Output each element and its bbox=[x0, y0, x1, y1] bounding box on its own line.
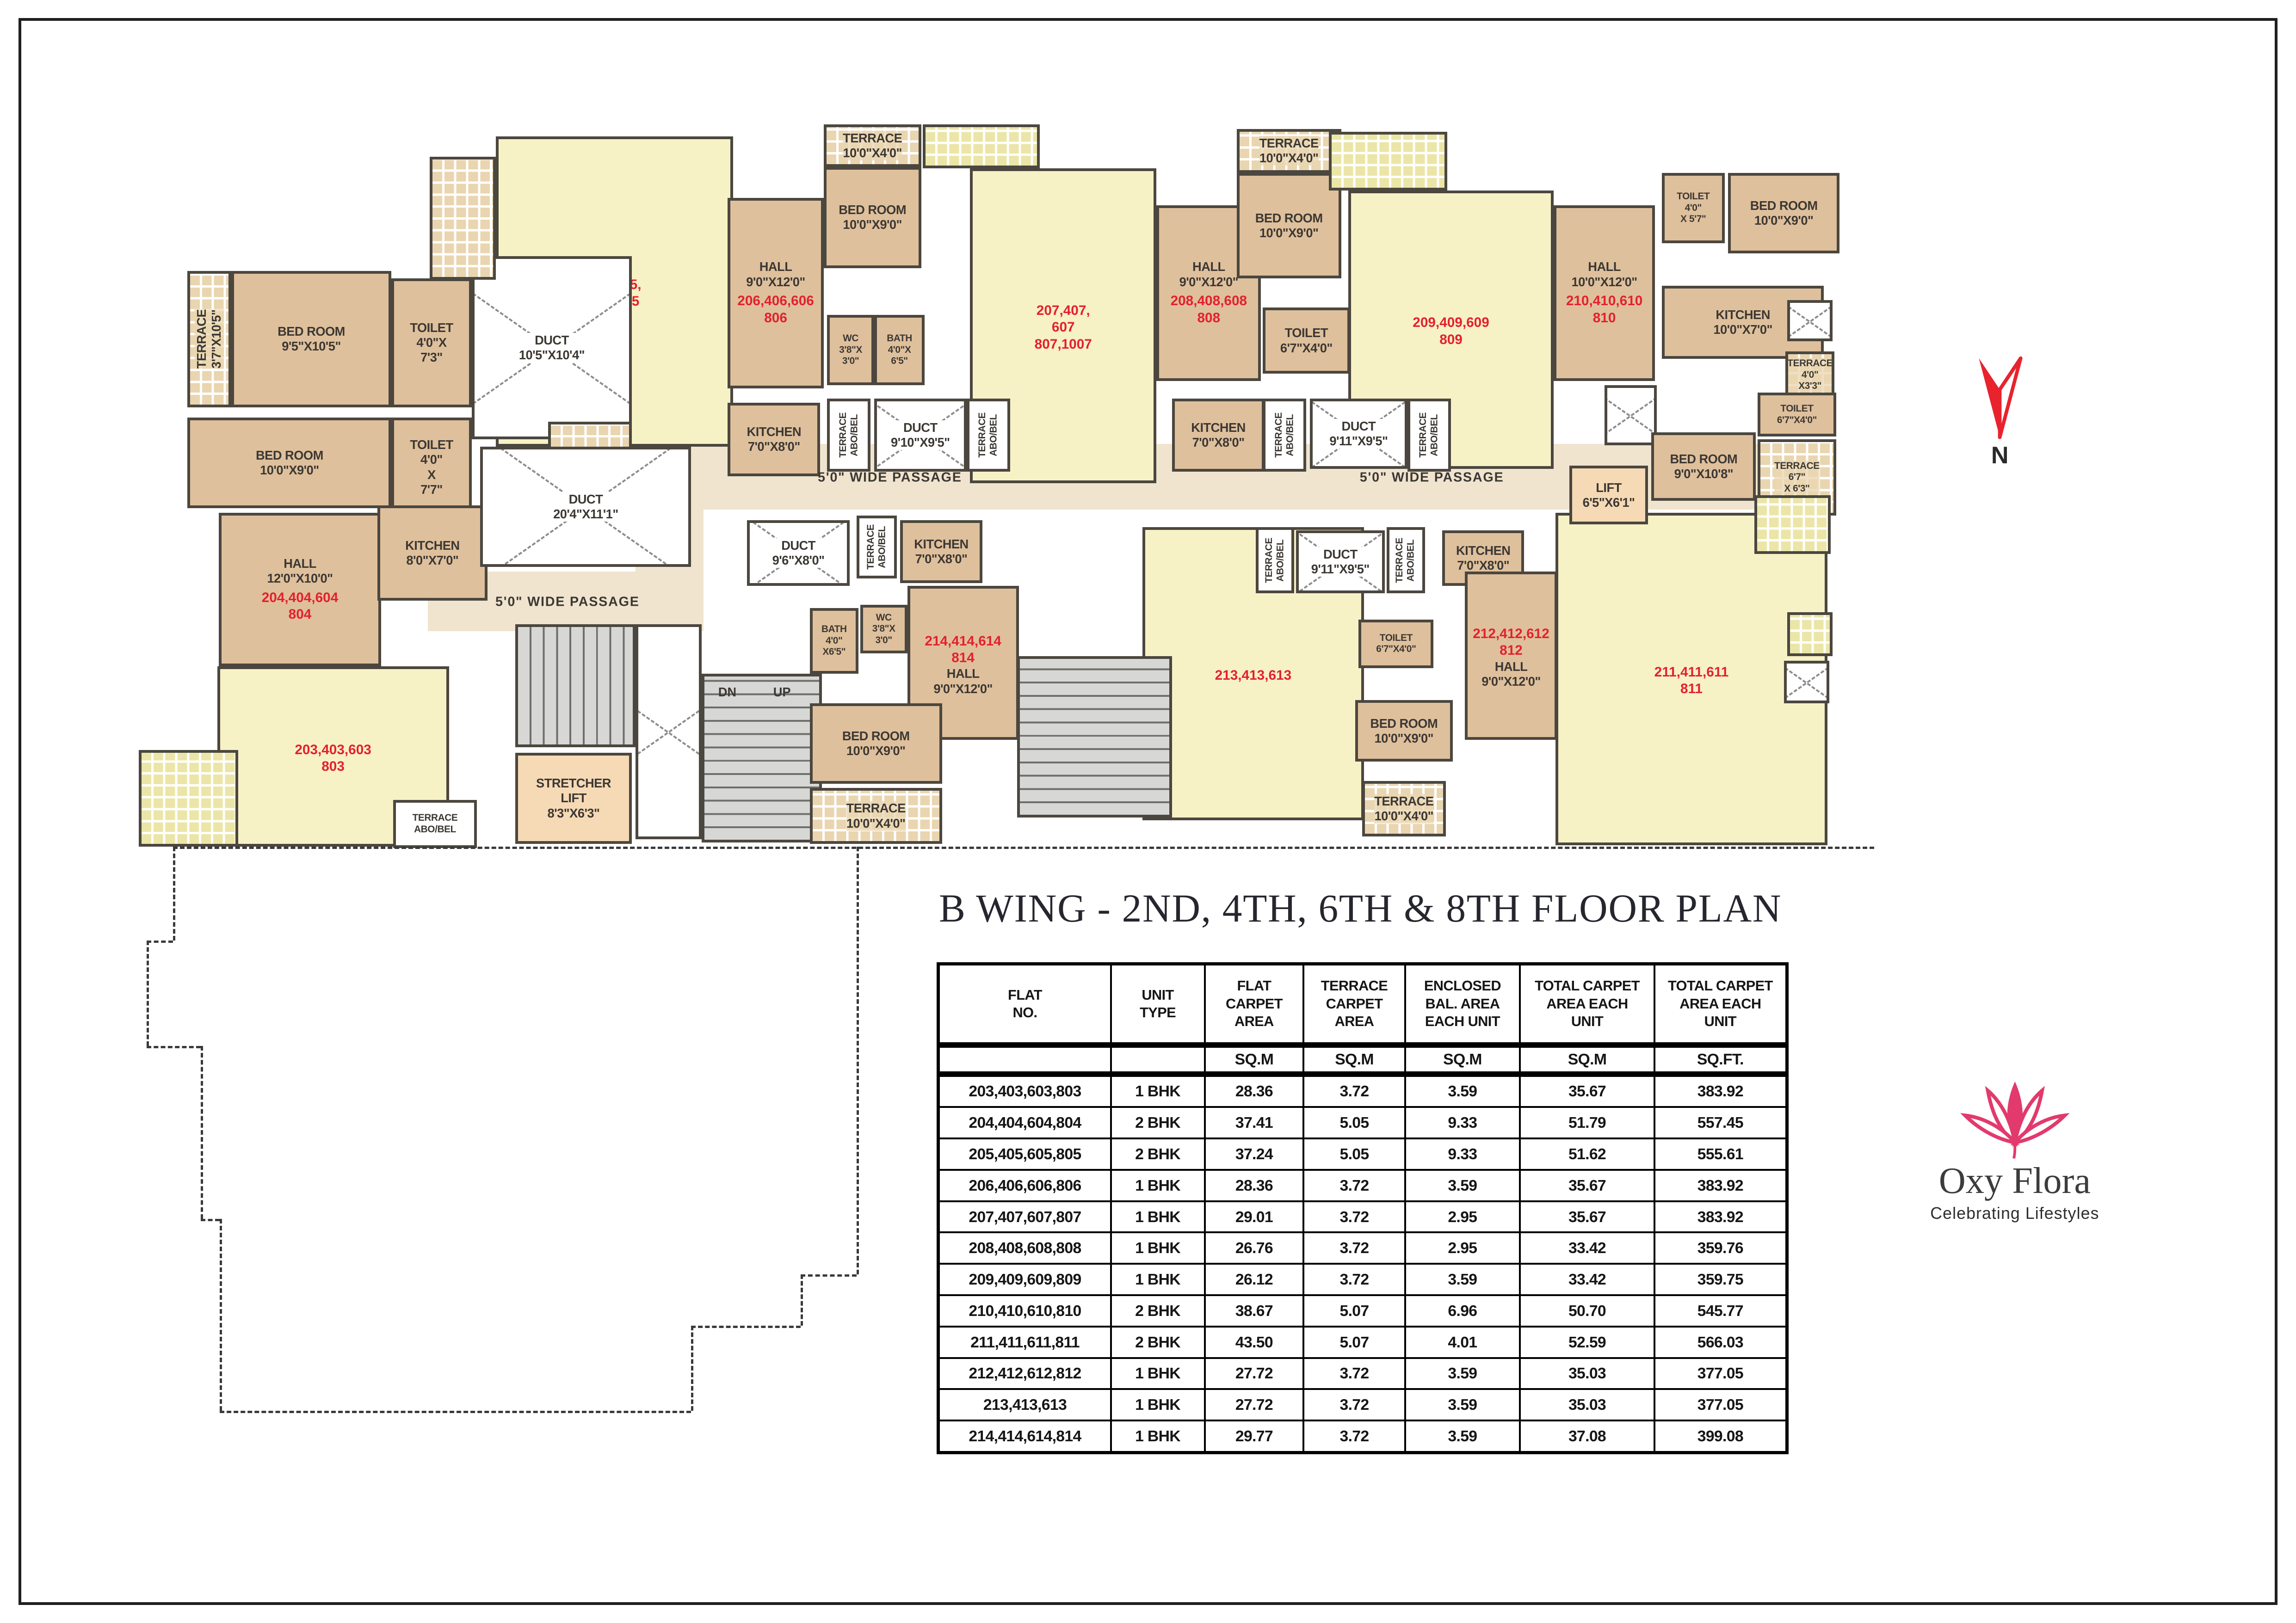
table-units-row: SQ.MSQ.MSQ.MSQ.MSQ.FT. bbox=[940, 1046, 1785, 1075]
footprint-outline-12 bbox=[801, 1274, 803, 1326]
kitchen-206: KITCHEN 7'0"X8'0" bbox=[728, 403, 820, 476]
table-row-4: 206,406,606,8061 BHK28.363.723.5935.6738… bbox=[940, 1169, 1785, 1200]
hall-206-lbl: HALL 9'0"X12'0" bbox=[746, 259, 805, 289]
terrace-205 bbox=[430, 157, 496, 280]
bedroom-210b: BED ROOM 9'0"X10'8" bbox=[1651, 432, 1756, 501]
table-row-1-cell-3: 28.36 bbox=[1204, 1077, 1303, 1107]
hall-214-flat: 214,414,614 814 bbox=[925, 633, 1001, 667]
table-row-11-cell-1: 213,413,613 bbox=[940, 1390, 1110, 1420]
table-row-9-cell-2: 2 BHK bbox=[1110, 1328, 1204, 1357]
table-row-8: 210,410,610,8102 BHK38.675.076.9650.7054… bbox=[940, 1294, 1785, 1326]
bedroom-210a-lbl: BED ROOM 10'0"X9'0" bbox=[1750, 198, 1818, 228]
table-row-11-cell-4: 3.72 bbox=[1302, 1390, 1404, 1420]
terrace-abobel-208l-lbl: TERRACE ABO/BEL bbox=[1273, 412, 1296, 458]
table-row-2-cell-2: 2 BHK bbox=[1110, 1108, 1204, 1137]
table-header-row-cell-2: UNIT TYPE bbox=[1110, 965, 1204, 1042]
table-row-8-cell-2: 2 BHK bbox=[1110, 1296, 1204, 1326]
table-row-4-cell-5: 3.59 bbox=[1404, 1171, 1519, 1200]
table-row-6: 208,408,608,8081 BHK26.763.722.9533.4235… bbox=[940, 1231, 1785, 1263]
table-row-2-cell-3: 37.41 bbox=[1204, 1108, 1303, 1137]
table-row-1-cell-2: 1 BHK bbox=[1110, 1077, 1204, 1107]
footprint-outline-6 bbox=[201, 1046, 203, 1219]
terrace-214: TERRACE 10'0"X4'0" bbox=[810, 788, 942, 843]
area-table: FLAT NO.UNIT TYPEFLAT CARPET AREATERRACE… bbox=[937, 962, 1789, 1454]
table-header-row-cell-3: FLAT CARPET AREA bbox=[1204, 965, 1303, 1042]
footprint-outline-13 bbox=[801, 1274, 857, 1277]
table-row-10-cell-6: 35.03 bbox=[1519, 1359, 1654, 1389]
bedroom-214: BED ROOM 10'0"X9'0" bbox=[810, 703, 942, 784]
wc-206: WC 3'8"X 3'0" bbox=[827, 315, 874, 385]
terrace-207 bbox=[923, 124, 1039, 168]
terrace-211a bbox=[1754, 495, 1831, 554]
duct-208: DUCT 9'11"X9'5" bbox=[1310, 399, 1407, 469]
table-row-9-cell-3: 43.50 bbox=[1204, 1328, 1303, 1357]
table-units-row-cell-3: SQ.M bbox=[1204, 1048, 1303, 1071]
table-units-row-cell-2 bbox=[1110, 1048, 1204, 1071]
table-row-9-cell-6: 52.59 bbox=[1519, 1328, 1654, 1357]
terrace-209 bbox=[1329, 132, 1447, 191]
terrace-204: TERRACE 3'7"X10'5" bbox=[187, 271, 231, 407]
passage-label-2: 5'0" WIDE PASSAGE bbox=[818, 470, 962, 485]
toilet-210b: TOILET 6'7"X4'0" bbox=[1758, 393, 1836, 436]
bedroom-208: BED ROOM 10'0"X9'0" bbox=[1237, 173, 1341, 278]
duct-211 bbox=[1784, 661, 1829, 703]
table-row-6-cell-1: 208,408,608,808 bbox=[940, 1233, 1110, 1263]
shaft-a bbox=[636, 624, 702, 840]
table-row-3-cell-4: 5.05 bbox=[1302, 1139, 1404, 1169]
table-row-11-cell-7: 377.05 bbox=[1654, 1390, 1785, 1420]
hall-206-flat: 206,406,606 806 bbox=[737, 293, 814, 326]
table-row-4-cell-2: 1 BHK bbox=[1110, 1171, 1204, 1200]
hall-204: HALL 12'0"X10'0"204,404,604 804 bbox=[219, 513, 381, 667]
stair-a: UPDN bbox=[515, 624, 636, 747]
table-row-4-cell-6: 35.67 bbox=[1519, 1171, 1654, 1200]
kitchen-212-lbl: KITCHEN 7'0"X8'0" bbox=[1456, 543, 1511, 573]
table-row-9-cell-1: 211,411,611,811 bbox=[940, 1328, 1110, 1357]
toilet-208-lbl: TOILET 6'7"X4'0" bbox=[1280, 326, 1333, 355]
table-row-2-cell-6: 51.79 bbox=[1519, 1108, 1654, 1137]
stair-b: DNUP bbox=[702, 674, 822, 842]
table-row-6-cell-6: 33.42 bbox=[1519, 1233, 1654, 1263]
terrace-208: TERRACE 10'0"X4'0" bbox=[1237, 129, 1341, 173]
terrace-214-lbl: TERRACE 10'0"X4'0" bbox=[846, 801, 906, 830]
kitchen-214-lbl: KITCHEN 7'0"X8'0" bbox=[914, 537, 969, 566]
bath-206: BATH 4'0"X 6'5" bbox=[874, 315, 925, 385]
table-row-2-cell-4: 5.05 bbox=[1302, 1108, 1404, 1137]
wc-206-lbl: WC 3'8"X 3'0" bbox=[839, 333, 862, 367]
table-row-7: 209,409,609,8091 BHK26.123.723.5933.4235… bbox=[940, 1263, 1785, 1294]
table-row-3-cell-7: 555.61 bbox=[1654, 1139, 1785, 1169]
table-row-3-cell-6: 51.62 bbox=[1519, 1139, 1654, 1169]
toilet-210b-lbl: TOILET 6'7"X4'0" bbox=[1777, 403, 1817, 426]
table-row-4-cell-4: 3.72 bbox=[1302, 1171, 1404, 1200]
table-row-3-cell-3: 37.24 bbox=[1204, 1139, 1303, 1169]
table-units-row-cell-4: SQ.M bbox=[1302, 1048, 1404, 1071]
table-row-5-cell-3: 29.01 bbox=[1204, 1202, 1303, 1232]
hall-208-flat: 208,408,608 808 bbox=[1171, 293, 1247, 326]
table-row-5-cell-4: 3.72 bbox=[1302, 1202, 1404, 1232]
brand-name: Oxy Flora bbox=[1848, 1161, 2181, 1201]
table-row-8-cell-4: 5.07 bbox=[1302, 1296, 1404, 1326]
table-row-12-cell-4: 3.72 bbox=[1302, 1421, 1404, 1451]
table-header-row-cell-6: TOTAL CARPET AREA EACH UNIT bbox=[1519, 965, 1654, 1042]
bath-206-lbl: BATH 4'0"X 6'5" bbox=[887, 333, 912, 367]
toilet-204b-lbl: TOILET 4'0" X 7'7" bbox=[410, 437, 453, 497]
bedroom-204b-lbl: BED ROOM 10'0"X9'0" bbox=[256, 448, 323, 478]
terrace-abobel-206l: TERRACE ABO/BEL bbox=[827, 399, 870, 472]
kitchen-206-lbl: KITCHEN 7'0"X8'0" bbox=[747, 424, 802, 454]
brand-logo: Oxy Flora Celebrating Lifestyles bbox=[1848, 1079, 2181, 1223]
table-row-12-cell-6: 37.08 bbox=[1519, 1421, 1654, 1451]
table-units-row-cell-1 bbox=[940, 1048, 1110, 1071]
table-row-3-cell-1: 205,405,605,805 bbox=[940, 1139, 1110, 1169]
north-arrow-icon bbox=[1970, 354, 2030, 443]
table-row-11-cell-5: 3.59 bbox=[1404, 1390, 1519, 1420]
table-row-2-cell-1: 204,404,604,804 bbox=[940, 1108, 1110, 1137]
table-row-12-cell-3: 29.77 bbox=[1204, 1421, 1303, 1451]
duct-213: DUCT 9'11"X9'5" bbox=[1296, 530, 1385, 593]
table-row-9-cell-7: 566.03 bbox=[1654, 1328, 1785, 1357]
table-row-1-cell-1: 203,403,603,803 bbox=[940, 1077, 1110, 1107]
flat-203-hall-flat: 203,403,603 803 bbox=[295, 742, 371, 775]
hall-208-lbl: HALL 9'0"X12'0" bbox=[1179, 259, 1239, 289]
terrace-abobel-206r-lbl: TERRACE ABO/BEL bbox=[977, 412, 1000, 458]
terrace-210b-lbl: TERRACE 6'7" X 6'3" bbox=[1774, 461, 1820, 495]
terrace-212: TERRACE 10'0"X4'0" bbox=[1362, 781, 1446, 836]
bedroom-204b: BED ROOM 10'0"X9'0" bbox=[187, 418, 391, 508]
terrace-204-lbl: TERRACE 3'7"X10'5" bbox=[194, 309, 224, 369]
table-row-5-cell-5: 2.95 bbox=[1404, 1202, 1519, 1232]
table-units-row-cell-7: SQ.FT. bbox=[1654, 1048, 1785, 1071]
table-row-5-cell-1: 207,407,607,807 bbox=[940, 1202, 1110, 1232]
north-label: N bbox=[1970, 443, 2030, 467]
toilet-210a: TOILET 4'0" X 5'7" bbox=[1662, 173, 1725, 243]
plan-title: B WING - 2ND, 4TH, 6TH & 8TH FLOOR PLAN bbox=[907, 886, 1814, 931]
table-row-1-cell-7: 383.92 bbox=[1654, 1077, 1785, 1107]
hall-210-flat: 210,410,610 810 bbox=[1566, 293, 1643, 326]
table-row-9-cell-5: 4.01 bbox=[1404, 1328, 1519, 1357]
table-row-3: 205,405,605,8052 BHK37.245.059.3351.6255… bbox=[940, 1137, 1785, 1169]
footprint-outline-8 bbox=[220, 1219, 222, 1411]
table-row-7-cell-3: 26.12 bbox=[1204, 1265, 1303, 1294]
hall-212: 212,412,612 812HALL 9'0"X12'0" bbox=[1465, 572, 1557, 740]
terrace-206: TERRACE 10'0"X4'0" bbox=[824, 124, 921, 167]
footprint-outline-14 bbox=[857, 847, 859, 1274]
toilet-212: TOILET 6'7"X4'0" bbox=[1358, 620, 1433, 668]
passage-label-1: 5'0" WIDE PASSAGE bbox=[495, 595, 640, 610]
bedroom-210a: BED ROOM 10'0"X9'0" bbox=[1728, 173, 1839, 253]
footprint-outline-4 bbox=[147, 941, 149, 1046]
footprint-outline-3 bbox=[147, 941, 173, 943]
lift-lbl: LIFT 6'5"X6'1" bbox=[1583, 480, 1635, 510]
table-row-4-cell-7: 383.92 bbox=[1654, 1171, 1785, 1200]
bath-214: BATH 4'0" X6'5" bbox=[810, 608, 858, 674]
wc-214-lbl: WC 3'8"X 3'0" bbox=[872, 612, 895, 646]
table-row-8-cell-1: 210,410,610,810 bbox=[940, 1296, 1110, 1326]
table-row-8-cell-5: 6.96 bbox=[1404, 1296, 1519, 1326]
terrace-abobel-203: TERRACE ABO/BEL bbox=[393, 800, 477, 848]
table-row-10-cell-4: 3.72 bbox=[1302, 1359, 1404, 1389]
table-row-6-cell-5: 2.95 bbox=[1404, 1233, 1519, 1263]
table-row-12-cell-1: 214,414,614,814 bbox=[940, 1421, 1110, 1451]
table-row-1-cell-5: 3.59 bbox=[1404, 1077, 1519, 1107]
hall-210: HALL 10'0"X12'0"210,410,610 810 bbox=[1554, 205, 1655, 381]
terrace-203 bbox=[139, 750, 238, 847]
table-row-3-cell-5: 9.33 bbox=[1404, 1139, 1519, 1169]
table-row-2-cell-7: 557.45 bbox=[1654, 1108, 1785, 1137]
table-row-10-cell-1: 212,412,612,812 bbox=[940, 1359, 1110, 1389]
flat-213-hall-flat: 213,413,613 bbox=[1215, 667, 1292, 684]
footprint-outline-5 bbox=[147, 1046, 201, 1048]
table-row-1-cell-4: 3.72 bbox=[1302, 1077, 1404, 1107]
table-row-9-cell-4: 5.07 bbox=[1302, 1328, 1404, 1357]
table-row-11-cell-3: 27.72 bbox=[1204, 1390, 1303, 1420]
stair-c: DNUP bbox=[1017, 656, 1172, 817]
table-row-11-cell-2: 1 BHK bbox=[1110, 1390, 1204, 1420]
table-row-5-cell-2: 1 BHK bbox=[1110, 1202, 1204, 1232]
terrace-206-lbl: TERRACE 10'0"X4'0" bbox=[843, 131, 902, 160]
terrace-abobel-203-lbl: TERRACE ABO/BEL bbox=[413, 812, 458, 835]
terrace-208-lbl: TERRACE 10'0"X4'0" bbox=[1259, 136, 1319, 166]
bedroom-204a-lbl: BED ROOM 9'5"X10'5" bbox=[278, 324, 345, 354]
duct-210b bbox=[1787, 300, 1833, 341]
duct-206-lbl: DUCT 9'10"X9'5" bbox=[891, 420, 950, 450]
terrace-abobel-213r-lbl: TERRACE ABO/BEL bbox=[1394, 538, 1417, 583]
duct-204: DUCT 10'5"X10'4" bbox=[472, 256, 632, 439]
table-row-11-cell-6: 35.03 bbox=[1519, 1390, 1654, 1420]
table-units-row-cell-5: SQ.M bbox=[1404, 1048, 1519, 1071]
table-row-4-cell-3: 28.36 bbox=[1204, 1171, 1303, 1200]
duct-206: DUCT 9'10"X9'5" bbox=[874, 399, 967, 472]
terrace-210s: TERRACE 4'0" X3'3" bbox=[1785, 351, 1834, 398]
table-row-6-cell-3: 26.76 bbox=[1204, 1233, 1303, 1263]
footprint-outline-1 bbox=[173, 847, 1874, 849]
floor-plan: 203,403,603 803205,405, 605,805207,407, … bbox=[132, 117, 1875, 849]
footprint-outline-11 bbox=[691, 1326, 801, 1328]
table-row-12: 214,414,614,8141 BHK29.773.723.5937.0839… bbox=[940, 1420, 1785, 1451]
lotus-icon bbox=[1958, 1079, 2072, 1161]
table-header-row-cell-7: TOTAL CARPET AREA EACH UNIT bbox=[1654, 965, 1785, 1042]
passage-label-3: 5'0" WIDE PASSAGE bbox=[1360, 470, 1504, 485]
bedroom-210b-lbl: BED ROOM 9'0"X10'8" bbox=[1670, 452, 1737, 481]
duct-214: DUCT 9'6"X8'0" bbox=[747, 520, 850, 586]
duct-204-lbl: DUCT 10'5"X10'4" bbox=[519, 333, 585, 363]
terrace-211b bbox=[1787, 612, 1833, 656]
table-row-8-cell-6: 50.70 bbox=[1519, 1296, 1654, 1326]
terrace-210s-lbl: TERRACE 4'0" X3'3" bbox=[1787, 358, 1833, 392]
footprint-outline-2 bbox=[173, 847, 175, 941]
table-row-7-cell-5: 3.59 bbox=[1404, 1265, 1519, 1294]
table-row-11: 213,413,6131 BHK27.723.723.5935.03377.05 bbox=[940, 1388, 1785, 1420]
footprint-outline-10 bbox=[691, 1326, 693, 1411]
flat-211-hall-flat: 211,411,611 811 bbox=[1654, 664, 1729, 698]
kitchen-210-lbl: KITCHEN 10'0"X7'0" bbox=[1713, 307, 1772, 337]
footprint-outline-7 bbox=[201, 1219, 220, 1221]
terrace-abobel-208l: TERRACE ABO/BEL bbox=[1263, 399, 1306, 472]
terrace-abobel-214: TERRACE ABO/BEL bbox=[857, 516, 897, 578]
table-row-12-cell-2: 1 BHK bbox=[1110, 1421, 1204, 1451]
table-row-6-cell-7: 359.76 bbox=[1654, 1233, 1785, 1263]
table-row-7-cell-1: 209,409,609,809 bbox=[940, 1265, 1110, 1294]
table-row-2: 204,404,604,8042 BHK37.415.059.3351.7955… bbox=[940, 1106, 1785, 1137]
table-header-row-cell-1: FLAT NO. bbox=[940, 965, 1110, 1042]
toilet-212-lbl: TOILET 6'7"X4'0" bbox=[1376, 633, 1416, 655]
hall-214-lbl: HALL 9'0"X12'0" bbox=[933, 666, 993, 696]
table-row-10-cell-2: 1 BHK bbox=[1110, 1359, 1204, 1389]
table-row-1-cell-6: 35.67 bbox=[1519, 1077, 1654, 1107]
table-row-5: 207,407,607,8071 BHK29.013.722.9535.6738… bbox=[940, 1200, 1785, 1232]
table-row-7-cell-6: 33.42 bbox=[1519, 1265, 1654, 1294]
terrace-abobel-206r: TERRACE ABO/BEL bbox=[967, 399, 1010, 472]
duct-central: DUCT 20'4"X11'1" bbox=[480, 447, 691, 567]
kitchen-208: KITCHEN 7'0"X8'0" bbox=[1172, 399, 1265, 472]
terrace-abobel-213l: TERRACE ABO/BEL bbox=[1256, 527, 1294, 593]
table-row-6-cell-2: 1 BHK bbox=[1110, 1233, 1204, 1263]
kitchen-204: KITCHEN 8'0"X7'0" bbox=[377, 505, 487, 601]
table-row-2-cell-5: 9.33 bbox=[1404, 1108, 1519, 1137]
table-row-10-cell-7: 377.05 bbox=[1654, 1359, 1785, 1389]
table-row-12-cell-7: 399.08 bbox=[1654, 1421, 1785, 1451]
table-row-12-cell-5: 3.59 bbox=[1404, 1421, 1519, 1451]
table-row-6-cell-4: 3.72 bbox=[1302, 1233, 1404, 1263]
north-indicator: N bbox=[1970, 354, 2030, 467]
stair-b-label-dn: DN bbox=[718, 685, 736, 700]
table-row-10-cell-5: 3.59 bbox=[1404, 1359, 1519, 1389]
table-row-10: 212,412,612,8121 BHK27.723.723.5935.0337… bbox=[940, 1357, 1785, 1389]
wc-214: WC 3'8"X 3'0" bbox=[860, 605, 907, 653]
bedroom-212-lbl: BED ROOM 10'0"X9'0" bbox=[1370, 716, 1438, 746]
table-row-10-cell-3: 27.72 bbox=[1204, 1359, 1303, 1389]
kitchen-214: KITCHEN 7'0"X8'0" bbox=[900, 520, 982, 583]
hall-212-lbl: HALL 9'0"X12'0" bbox=[1481, 659, 1541, 689]
duct-210a bbox=[1605, 385, 1657, 445]
stair-b-label-up: UP bbox=[773, 685, 791, 700]
table-row-5-cell-6: 35.67 bbox=[1519, 1202, 1654, 1232]
brand-tagline: Celebrating Lifestyles bbox=[1848, 1204, 2181, 1223]
terrace-abobel-208r: TERRACE ABO/BEL bbox=[1407, 399, 1451, 472]
table-row-7-cell-4: 3.72 bbox=[1302, 1265, 1404, 1294]
lift: LIFT 6'5"X6'1" bbox=[1569, 466, 1648, 524]
bedroom-212: BED ROOM 10'0"X9'0" bbox=[1355, 700, 1453, 762]
toilet-204a: TOILET 4'0"X 7'3" bbox=[391, 278, 471, 407]
duct-208-lbl: DUCT 9'11"X9'5" bbox=[1329, 419, 1388, 449]
duct-214-lbl: DUCT 9'6"X8'0" bbox=[772, 538, 825, 568]
flat-207-hall-flat: 207,407, 607 807,1007 bbox=[1035, 302, 1092, 353]
table-row-7-cell-2: 1 BHK bbox=[1110, 1265, 1204, 1294]
bedroom-204a: BED ROOM 9'5"X10'5" bbox=[231, 271, 392, 407]
table-header-row: FLAT NO.UNIT TYPEFLAT CARPET AREATERRACE… bbox=[940, 965, 1785, 1045]
footprint-outline-9 bbox=[220, 1411, 691, 1413]
terrace-abobel-208r-lbl: TERRACE ABO/BEL bbox=[1418, 412, 1440, 458]
terrace-212-lbl: TERRACE 10'0"X4'0" bbox=[1374, 794, 1433, 824]
table-header-row-cell-4: TERRACE CARPET AREA bbox=[1302, 965, 1404, 1042]
duct-central-lbl: DUCT 20'4"X11'1" bbox=[553, 492, 618, 522]
table-row-8-cell-3: 38.67 bbox=[1204, 1296, 1303, 1326]
toilet-204a-lbl: TOILET 4'0"X 7'3" bbox=[410, 320, 453, 365]
stretcher-lift-lbl: STRETCHER LIFT 8'3"X6'3" bbox=[536, 776, 611, 821]
terrace-abobel-213l-lbl: TERRACE ABO/BEL bbox=[1264, 538, 1286, 583]
table-row-8-cell-7: 545.77 bbox=[1654, 1296, 1785, 1326]
hall-206: HALL 9'0"X12'0"206,406,606 806 bbox=[728, 198, 823, 388]
bedroom-208-lbl: BED ROOM 10'0"X9'0" bbox=[1255, 211, 1323, 240]
toilet-208: TOILET 6'7"X4'0" bbox=[1263, 307, 1350, 374]
hall-212-flat: 212,412,612 812 bbox=[1473, 626, 1549, 659]
stretcher-lift: STRETCHER LIFT 8'3"X6'3" bbox=[515, 753, 632, 843]
kitchen-208-lbl: KITCHEN 7'0"X8'0" bbox=[1191, 420, 1246, 450]
table-row-9: 211,411,611,8112 BHK43.505.074.0152.5956… bbox=[940, 1326, 1785, 1357]
page: 203,403,603 803205,405, 605,805207,407, … bbox=[0, 0, 2296, 1623]
table-row-4-cell-1: 206,406,606,806 bbox=[940, 1171, 1110, 1200]
duct-213-lbl: DUCT 9'11"X9'5" bbox=[1311, 547, 1370, 577]
toilet-210a-lbl: TOILET 4'0" X 5'7" bbox=[1677, 191, 1710, 225]
flat-209-hall-flat: 209,409,609 809 bbox=[1413, 314, 1489, 348]
bath-214-lbl: BATH 4'0" X6'5" bbox=[821, 624, 847, 658]
terrace-abobel-206l-lbl: TERRACE ABO/BEL bbox=[838, 412, 860, 458]
bedroom-214-lbl: BED ROOM 10'0"X9'0" bbox=[842, 729, 910, 758]
bedroom-206: BED ROOM 10'0"X9'0" bbox=[824, 167, 921, 268]
table-row-1: 203,403,603,8031 BHK28.363.723.5935.6738… bbox=[940, 1075, 1785, 1107]
table-row-3-cell-2: 2 BHK bbox=[1110, 1139, 1204, 1169]
table-units-row-cell-6: SQ.M bbox=[1519, 1048, 1654, 1071]
hall-210-lbl: HALL 10'0"X12'0" bbox=[1572, 259, 1637, 289]
hall-204-lbl: HALL 12'0"X10'0" bbox=[267, 556, 333, 586]
toilet-204b: TOILET 4'0" X 7'7" bbox=[391, 418, 471, 517]
table-header-row-cell-5: ENCLOSED BAL. AREA EACH UNIT bbox=[1404, 965, 1519, 1042]
table-row-7-cell-7: 359.75 bbox=[1654, 1265, 1785, 1294]
bedroom-206-lbl: BED ROOM 10'0"X9'0" bbox=[839, 203, 906, 232]
terrace-abobel-213r: TERRACE ABO/BEL bbox=[1387, 527, 1425, 593]
table-row-5-cell-7: 383.92 bbox=[1654, 1202, 1785, 1232]
kitchen-204-lbl: KITCHEN 8'0"X7'0" bbox=[405, 538, 460, 568]
terrace-abobel-214-lbl: TERRACE ABO/BEL bbox=[865, 524, 888, 570]
hall-204-flat: 204,404,604 804 bbox=[262, 590, 339, 623]
